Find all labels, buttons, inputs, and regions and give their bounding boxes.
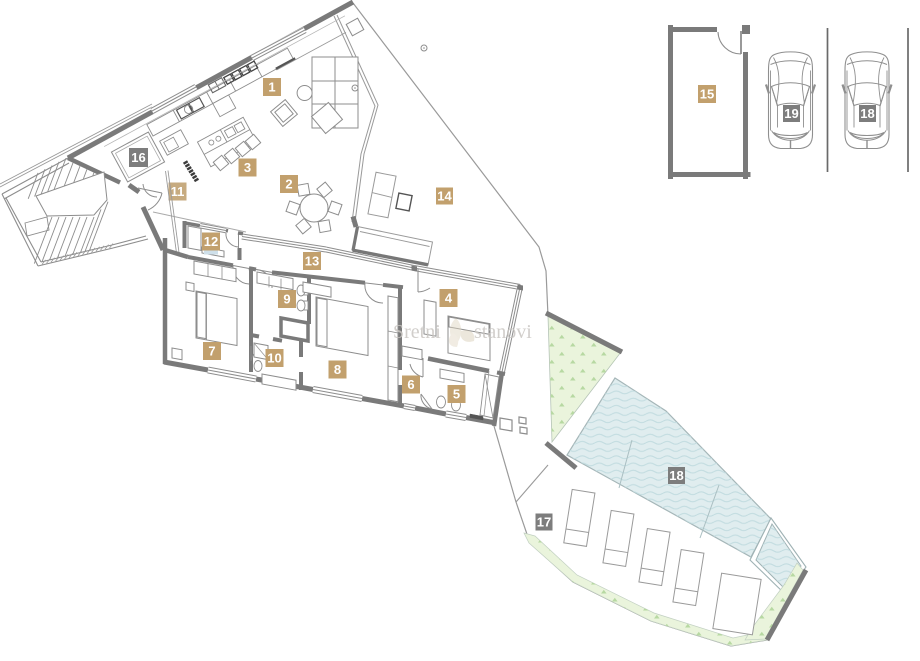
svg-text:9: 9	[283, 292, 290, 307]
svg-text:7: 7	[208, 344, 215, 359]
svg-text:stanovi: stanovi	[474, 321, 532, 343]
svg-text:15: 15	[700, 87, 714, 102]
svg-text:13: 13	[305, 254, 319, 269]
svg-text:4: 4	[445, 291, 453, 306]
svg-text:10: 10	[267, 351, 281, 366]
svg-text:18: 18	[669, 468, 683, 483]
svg-text:18: 18	[860, 106, 874, 121]
svg-text:19: 19	[784, 106, 798, 121]
svg-text:17: 17	[537, 515, 551, 530]
svg-text:16: 16	[131, 150, 145, 165]
svg-text:12: 12	[204, 234, 218, 249]
svg-text:1: 1	[268, 80, 275, 95]
svg-text:3: 3	[244, 160, 251, 175]
svg-text:5: 5	[453, 387, 460, 402]
svg-text:8: 8	[334, 362, 341, 377]
svg-text:11: 11	[171, 184, 185, 199]
svg-text:Sretni: Sretni	[393, 321, 441, 343]
svg-text:14: 14	[437, 189, 452, 204]
svg-text:2: 2	[285, 177, 292, 192]
svg-text:6: 6	[407, 377, 414, 392]
